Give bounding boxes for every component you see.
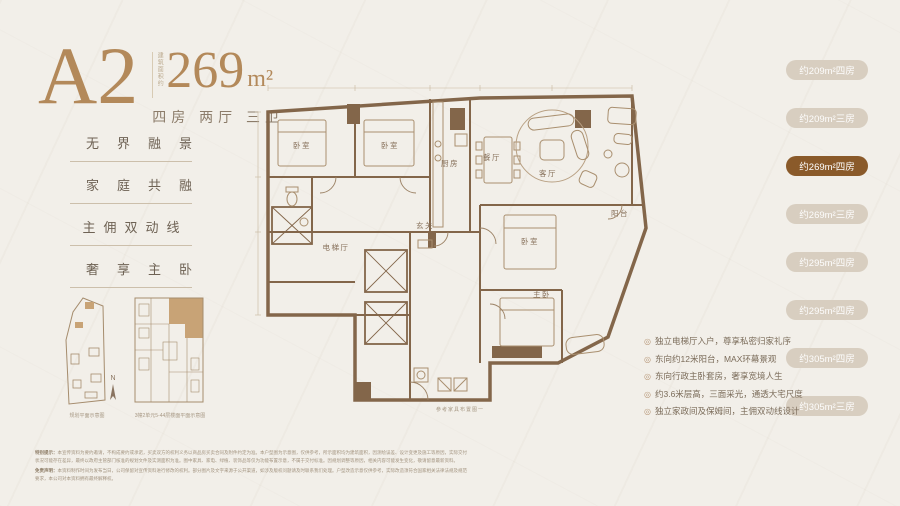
ring-bullet-icon: ◎	[644, 390, 651, 400]
feature-item: 奢享主卧	[70, 259, 192, 288]
unit-tab-209-3br[interactable]: 约209m²三房	[786, 108, 868, 128]
disclaimer-line: 免责声明：本资料制作时间为发布当日，公司保留对宣传资料进行修改的权利。部分图片及…	[35, 467, 467, 483]
plan-caption: 参考家具布置图一	[436, 406, 516, 413]
feature-item: 家庭共融	[70, 175, 192, 204]
floorplan-drawing: 卧室 卧室 厨房 餐厅 客厅 阳台 玄关 电梯厅 卧室 主卧	[252, 82, 652, 432]
ring-bullet-icon: ◎	[644, 372, 651, 382]
unit-tab-295-4br-b[interactable]: 约295m²四房	[786, 300, 868, 320]
room-label-bedroom3: 卧室	[521, 236, 539, 246]
room-labels: 卧室 卧室 厨房 餐厅 客厅 阳台 玄关 电梯厅 卧室 主卧	[293, 140, 629, 299]
unit-tab-209-4br[interactable]: 约209m²四房	[786, 60, 868, 80]
room-label-foyer: 玄关	[416, 220, 434, 230]
disclaimer-line: 特别提示：本宣传资料为要约邀请，不构成要约或承诺，买卖双方的权利义务以商品房买卖…	[35, 449, 467, 465]
north-indicator: N	[106, 375, 120, 406]
disclaimer-label: 免责声明：	[35, 468, 58, 473]
room-label-elevator-hall: 电梯厅	[323, 242, 350, 252]
unit-tab-269-3br[interactable]: 约269m²三房	[786, 204, 868, 224]
room-label-kitchen: 厨房	[441, 158, 459, 168]
unit-name: A2	[38, 40, 138, 112]
disclaimer-text: 本资料制作时间为发布当日，公司保留对宣传资料进行修改的权利。部分图片及文字来源于…	[35, 468, 467, 481]
area-prefix-label: 建筑面积约	[152, 52, 164, 98]
selling-point: ◎ 东向约12米阳台，MAX环幕景观	[644, 355, 800, 365]
ring-bullet-icon: ◎	[644, 337, 651, 347]
floor-key-caption: 3幢2单元5-44层楼面平面示意图	[118, 412, 222, 419]
disclaimer-label: 特别提示：	[35, 450, 58, 455]
elevator-shafts	[272, 207, 407, 344]
room-label-dining: 餐厅	[483, 153, 501, 162]
ring-bullet-icon: ◎	[644, 355, 651, 365]
unit-tab-269-4br-active[interactable]: 约269m²四房	[786, 156, 868, 176]
feature-list: 无界融景 家庭共融 主佣双动线 奢享主卧	[70, 133, 192, 301]
north-label: N	[106, 375, 120, 383]
selling-point: ◎ 约3.6米层高，三面采光，通透大宅尺度	[644, 390, 800, 400]
selling-point-text: 东向约12米阳台，MAX环幕景观	[655, 355, 776, 365]
room-label-living: 客厅	[539, 168, 557, 178]
selling-point-text: 独立家政间及保姆间，主佣双动线设计	[655, 407, 800, 417]
room-label-bedroom1: 卧室	[293, 140, 311, 150]
floorplan-brochure-page: A2 建筑面积约 269 m² 四房 两厅 三卫 无界融景 家庭共融 主佣双动线…	[0, 0, 900, 506]
room-label-balcony: 阳台	[611, 208, 629, 218]
disclaimer-text: 本宣传资料为要约邀请，不构成要约或承诺，买卖双方的权利义务以商品房买卖合同及附件…	[35, 450, 467, 463]
feature-item: 主佣双动线	[70, 217, 192, 246]
room-label-bedroom2: 卧室	[381, 140, 399, 150]
disclaimer: 特别提示：本宣传资料为要约邀请，不构成要约或承诺，买卖双方的权利义务以商品房买卖…	[35, 449, 467, 485]
selling-point: ◎ 东向行政主卧套房，奢享宽境人生	[644, 372, 800, 382]
feature-item: 无界融景	[70, 133, 192, 162]
selling-point-text: 东向行政主卧套房，奢享宽境人生	[655, 372, 783, 382]
floor-key-plan	[131, 294, 209, 406]
header: A2 建筑面积约 269 m² 四房 两厅 三卫	[38, 40, 284, 127]
area-value: 269	[166, 46, 244, 96]
compass-needle-icon	[106, 383, 120, 401]
ring-bullet-icon: ◎	[644, 407, 651, 417]
selling-points-list: ◎ 独立电梯厅入户，尊享私密归家礼序 ◎ 东向约12米阳台，MAX环幕景观 ◎ …	[644, 337, 800, 425]
selling-point-text: 约3.6米层高，三面采光，通透大宅尺度	[655, 390, 803, 400]
selling-point: ◎ 独立家政间及保姆间，主佣双动线设计	[644, 407, 800, 417]
unit-tab-295-4br-a[interactable]: 约295m²四房	[786, 252, 868, 272]
selling-point: ◎ 独立电梯厅入户，尊享私密归家礼序	[644, 337, 800, 347]
selling-point-text: 独立电梯厅入户，尊享私密归家礼序	[655, 337, 791, 347]
room-label-master: 主卧	[533, 289, 551, 299]
